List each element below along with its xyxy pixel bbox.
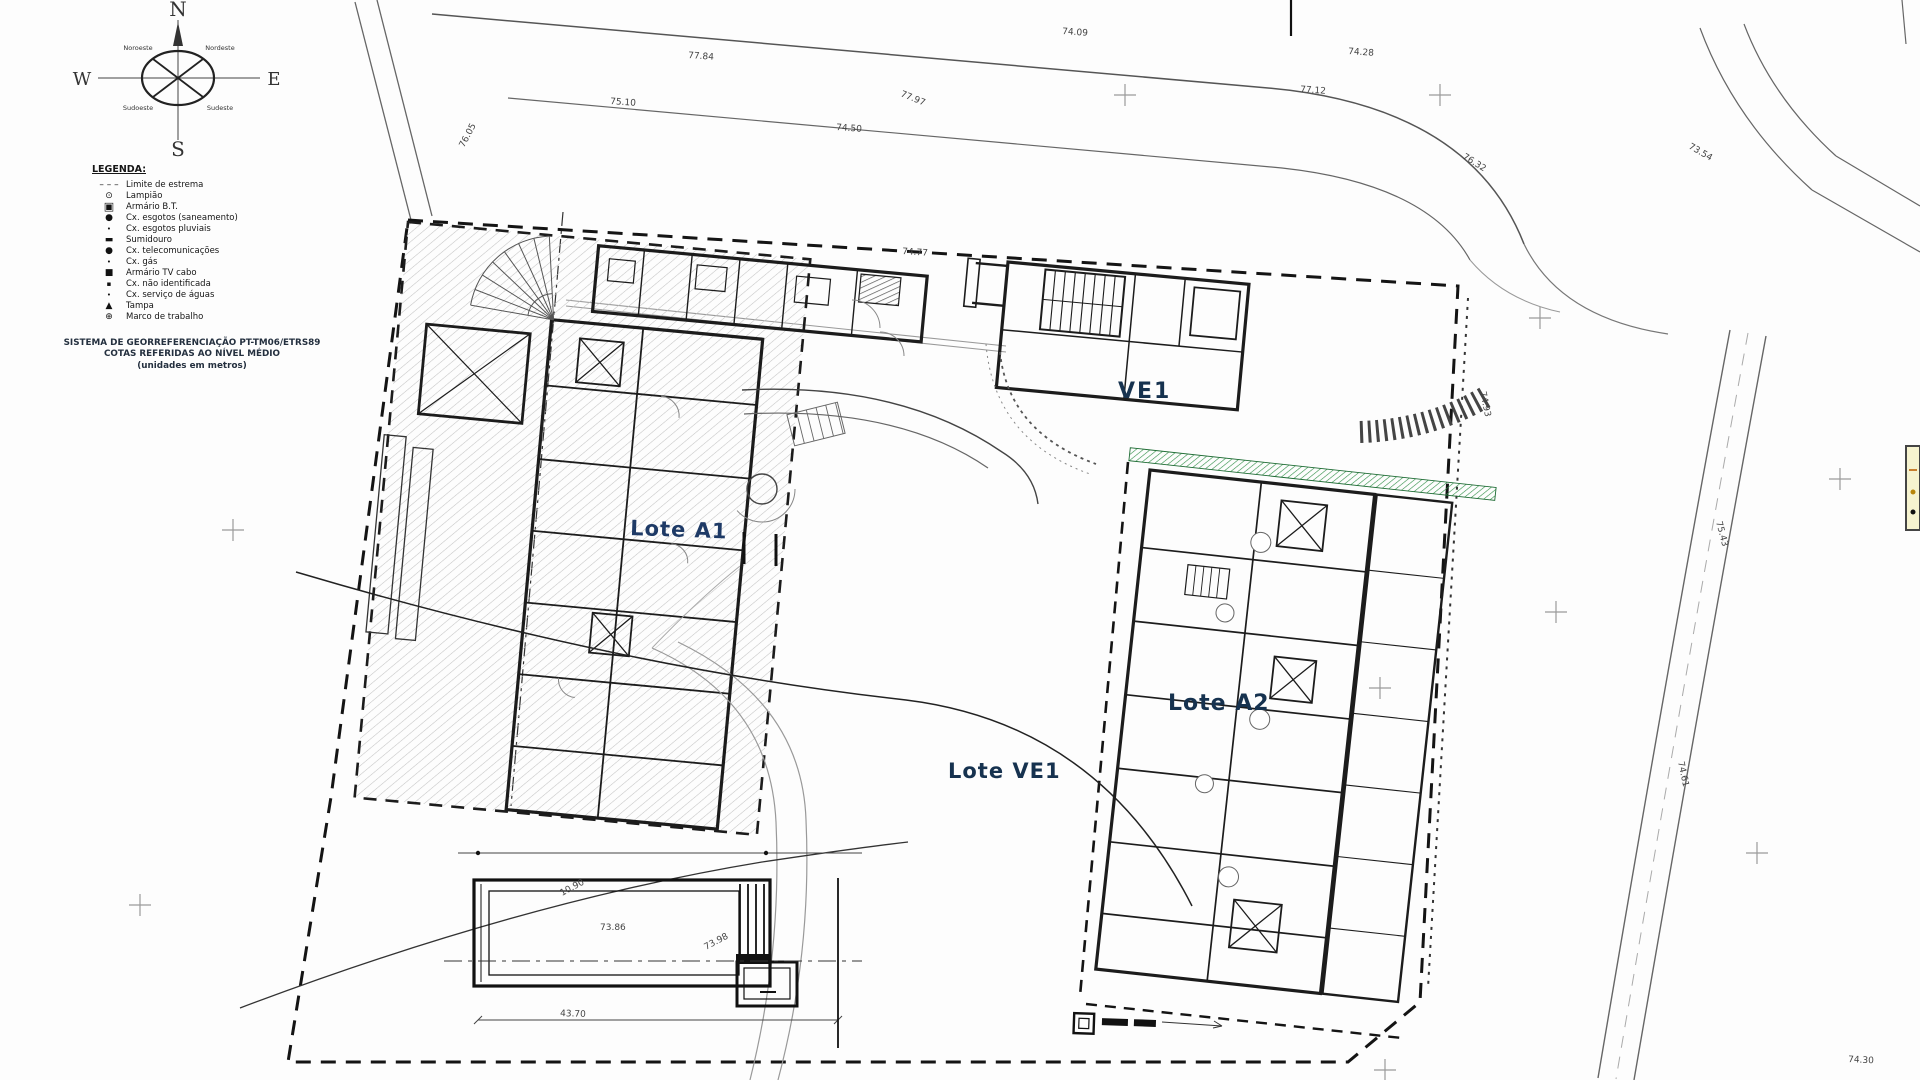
pool-stairs <box>740 884 764 958</box>
lote-a1-label: Lote A1 <box>630 516 728 543</box>
elevation-label: 74.77 <box>902 247 928 259</box>
legend-item: ■Armário TV cabo <box>92 267 330 278</box>
elevation-label: 74.09 <box>1062 27 1089 39</box>
georef-line-1: SISTEMA DE GEORREFERENCIAÇÃO PT-TM06/ETR… <box>52 338 332 349</box>
water-box-icon: • <box>92 290 126 300</box>
info-panel: N S W E Noroeste Nordeste Sudoeste Sudes… <box>62 0 330 372</box>
compass-ne-label: Nordeste <box>205 44 234 52</box>
legend-item: ●Cx. esgotos (saneamento) <box>92 212 330 223</box>
cover-icon: ▲ <box>92 301 126 311</box>
georeference-note: SISTEMA DE GEORREFERENCIAÇÃO PT-TM06/ETR… <box>52 338 332 372</box>
site-plan-canvas: Lote A1 VE1 Lote A2 Lote VE1 77.84 77.97… <box>0 0 1920 1080</box>
ve1-curved-ramp <box>1360 396 1487 432</box>
elevation-label: 77.12 <box>1300 85 1326 97</box>
legend-item: ⊕Marco de trabalho <box>92 311 330 322</box>
gully-icon: ▬ <box>92 235 126 245</box>
legend-item: •Cx. gás <box>92 256 330 267</box>
legend-item: ⊙Lampião <box>92 190 330 201</box>
legend-title: LEGENDA: <box>92 164 330 175</box>
pool-dim-label: 73.98 <box>703 932 731 953</box>
tv-cabinet-icon: ■ <box>92 268 126 278</box>
elevation-label: 77.84 <box>688 51 715 63</box>
legend-item: ▬Sumidouro <box>92 234 330 245</box>
ve1-label: VE1 <box>1118 379 1171 404</box>
bt-cabinet-icon: ▣ <box>92 202 126 212</box>
sewer-box-icon: ● <box>92 213 126 223</box>
compass-rose-wrap: N S W E Noroeste Nordeste Sudoeste Sudes… <box>68 0 330 162</box>
georef-line-3: (unidades em metros) <box>52 361 332 372</box>
compass-north-label: N <box>169 0 187 21</box>
pool-dim-label: 43.70 <box>560 1009 586 1020</box>
elevation-label: 73.54 <box>1687 142 1715 164</box>
elevation-label: 74.28 <box>1348 47 1375 59</box>
lote-a2-parcel <box>1074 448 1496 1007</box>
compass-nw-label: Noroeste <box>123 44 152 52</box>
ve1-door-arcs <box>852 300 904 356</box>
ve1-building <box>957 258 1249 410</box>
georef-line-2: COTAS REFERIDAS AO NÍVEL MÉDIO <box>52 349 332 360</box>
legend-item: ▣Armário B.T. <box>92 201 330 212</box>
lamp-post-icon: ⊙ <box>92 191 126 201</box>
elevation-label: 74.30 <box>1848 1055 1875 1066</box>
compass-se-label: Sudeste <box>207 104 233 112</box>
lote-ve1-label: Lote VE1 <box>948 759 1061 783</box>
gas-box-icon: • <box>92 257 126 267</box>
lote-a2-building <box>1096 470 1452 1002</box>
elevation-label: 76.32 <box>1460 152 1487 174</box>
legend-item: •Cx. serviço de águas <box>92 289 330 300</box>
note-arrow <box>1162 1021 1222 1028</box>
legend-item: •Cx. esgotos pluviais <box>92 223 330 234</box>
lote-a2-label: Lote A2 <box>1168 691 1270 716</box>
elevation-label: 75.43 <box>1713 520 1729 547</box>
elevation-label: 75.10 <box>610 97 637 109</box>
storm-drain-box-icon: • <box>92 224 126 234</box>
pool-area <box>444 851 862 1048</box>
elevation-label: 74.61 <box>1675 761 1690 788</box>
legend-item: – – –Limite de estrema <box>92 179 330 190</box>
telecom-box-icon: ● <box>92 246 126 256</box>
north-arrow <box>173 22 183 46</box>
unknown-box-icon: ▪ <box>92 279 126 289</box>
compass-east-label: E <box>267 69 280 90</box>
compass-sw-label: Sudoeste <box>123 104 153 112</box>
boundary-line-sample-icon: – – – <box>92 180 126 190</box>
contour-line-2 <box>240 842 908 1008</box>
pool-elevation-label: 73.86 <box>600 923 626 933</box>
compass-rose: N S W E Noroeste Nordeste Sudoeste Sudes… <box>68 0 298 158</box>
legend-item: ▪Cx. não identificada <box>92 278 330 289</box>
elevation-label: 74.50 <box>836 123 863 135</box>
compass-south-label: S <box>171 137 185 158</box>
legend-item: ▲Tampa <box>92 300 330 311</box>
elevation-label: 77.97 <box>899 90 927 109</box>
survey-mark-icon: ⊕ <box>92 312 126 322</box>
compass-west-label: W <box>73 69 92 90</box>
legend: LEGENDA: – – –Limite de estrema ⊙Lampião… <box>92 164 330 322</box>
ve1-dotted-edge <box>986 344 1096 474</box>
legend-item: ●Cx. telecomunicações <box>92 245 330 256</box>
elevation-label: 76.05 <box>458 122 479 149</box>
edge-callout-box <box>1906 446 1920 530</box>
